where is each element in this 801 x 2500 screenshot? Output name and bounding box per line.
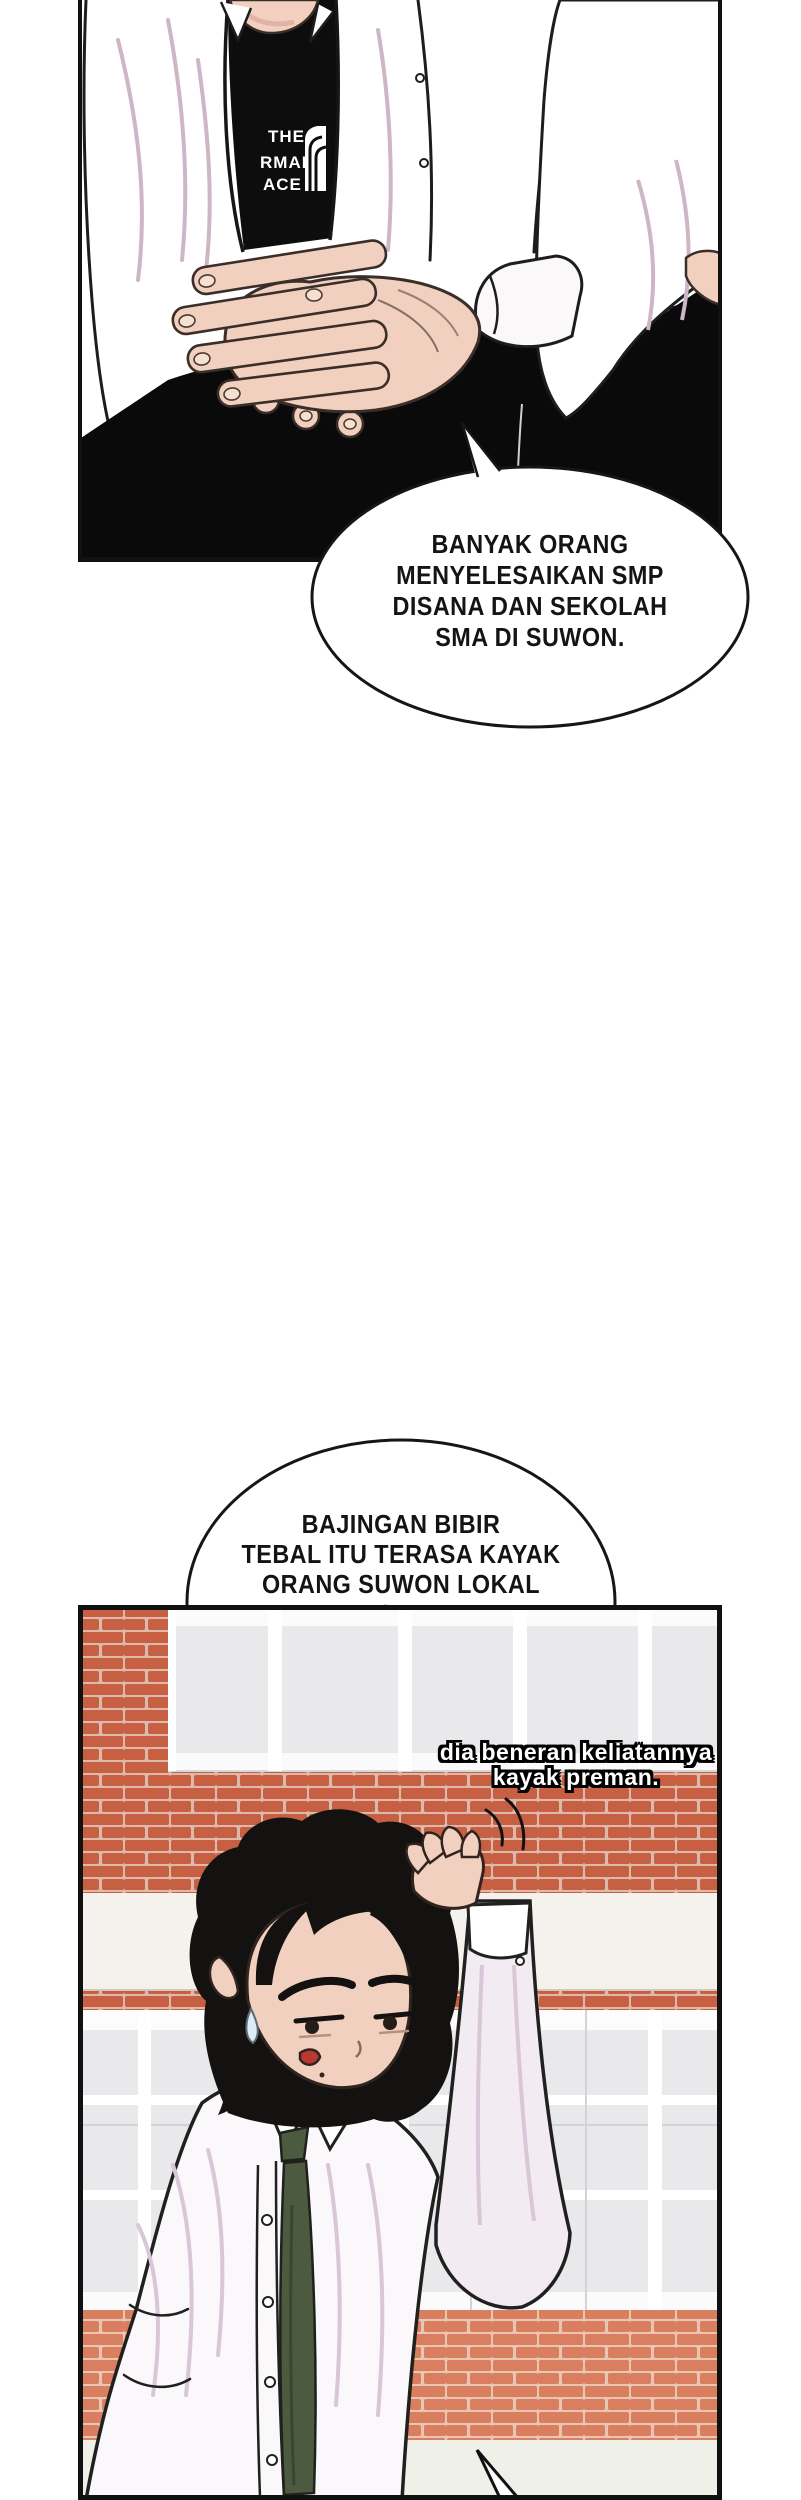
sleeve-cuff bbox=[468, 1903, 530, 1958]
mouth bbox=[300, 2050, 320, 2065]
tie-knot bbox=[280, 2127, 308, 2161]
translator-caption: dia beneran keliatannya kayak preman. bbox=[420, 1740, 732, 1790]
webtoon-page: THE RMAL ACE bbox=[0, 0, 801, 2500]
tee-logo-line3: ACE bbox=[263, 175, 302, 194]
tie bbox=[280, 2161, 315, 2495]
bubble-1-text: BANYAK ORANG MENYELESAIKAN SMP DISANA DA… bbox=[341, 529, 719, 653]
tee-logo-line1: THE bbox=[268, 127, 305, 146]
tee-logo: THE RMAL ACE bbox=[260, 126, 326, 194]
